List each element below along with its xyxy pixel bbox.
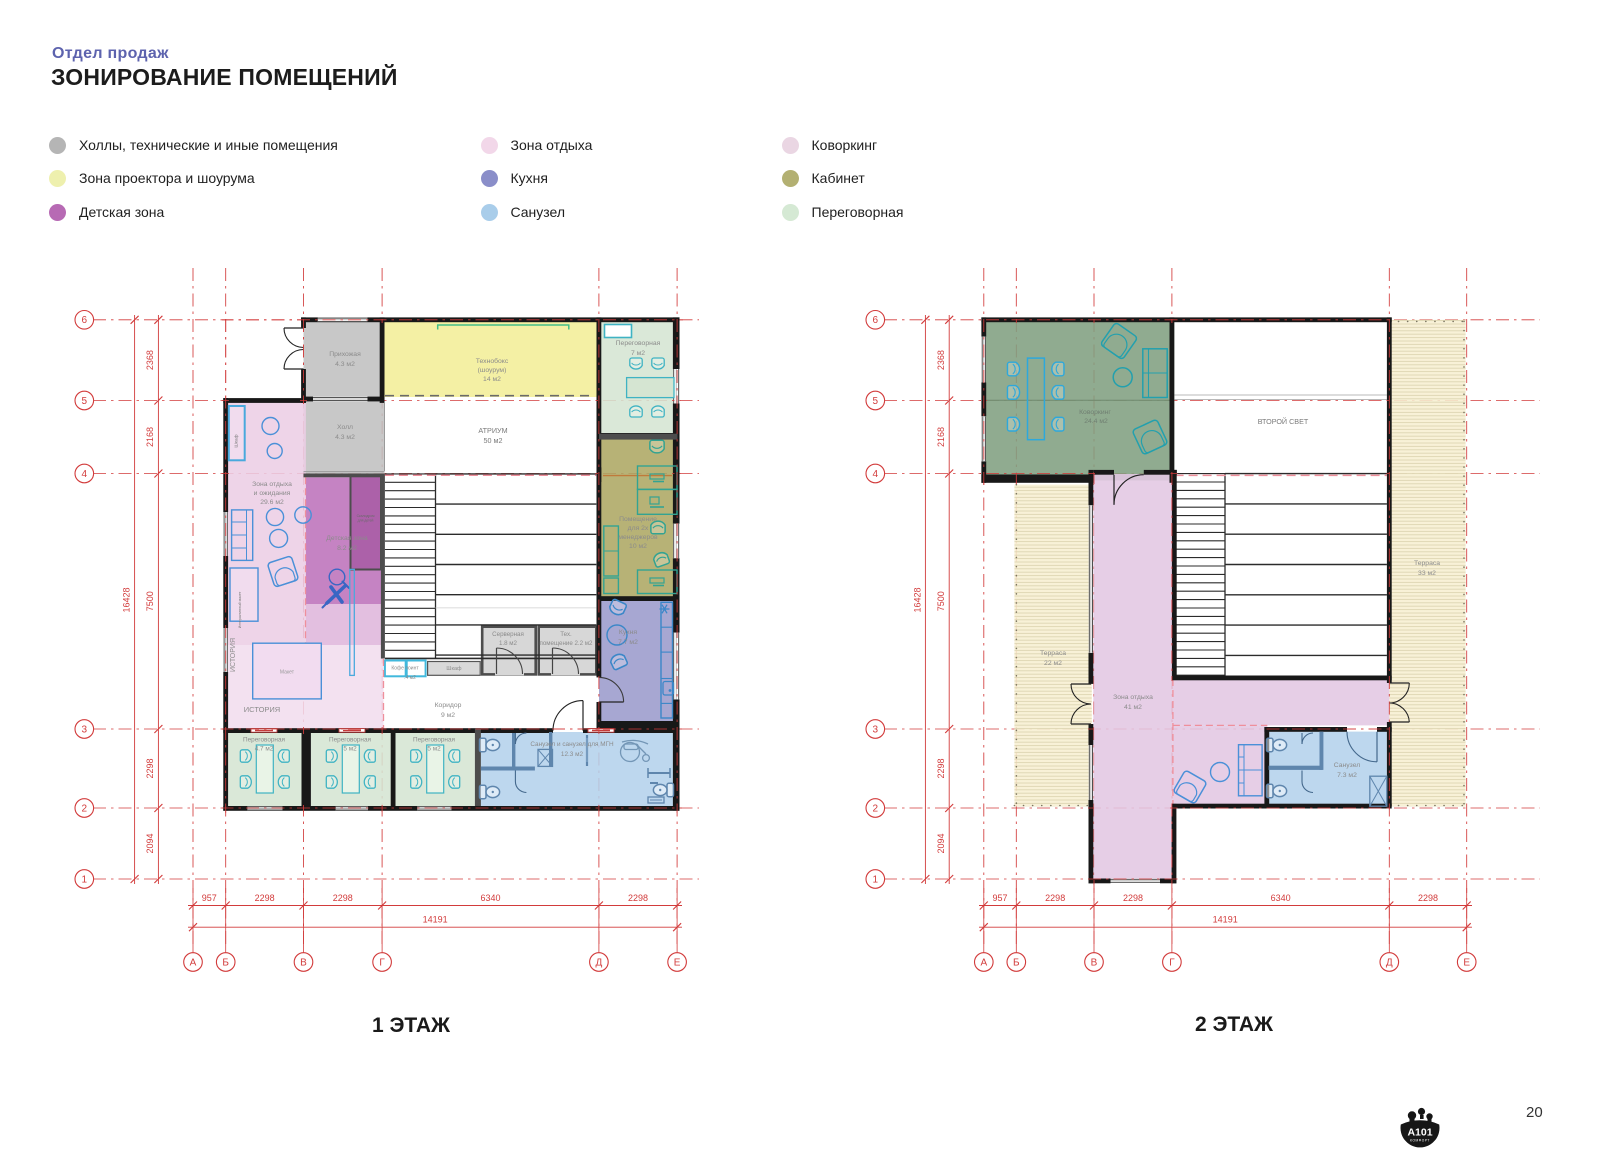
svg-text:2: 2 xyxy=(82,803,88,814)
svg-text:Детская зона: Детская зона xyxy=(326,535,368,542)
svg-text:4.7 м2: 4.7 м2 xyxy=(255,746,274,753)
svg-text:помещение 2.2 м2: помещение 2.2 м2 xyxy=(540,640,594,647)
svg-text:ВТОРОЙ СВЕТ: ВТОРОЙ СВЕТ xyxy=(1258,417,1309,426)
svg-text:5 м2: 5 м2 xyxy=(427,746,441,753)
svg-text:Зона отдыха: Зона отдыха xyxy=(1113,694,1153,701)
svg-text:8.2 м2: 8.2 м2 xyxy=(337,545,357,552)
svg-text:Терраса: Терраса xyxy=(1040,650,1066,657)
svg-text:Технобокс: Технобокс xyxy=(476,357,509,365)
svg-text:Помещение: Помещение xyxy=(619,516,657,523)
svg-text:2: 2 xyxy=(873,803,879,814)
svg-text:6340: 6340 xyxy=(480,893,500,903)
svg-text:957: 957 xyxy=(202,893,217,903)
svg-text:4.3 м2: 4.3 м2 xyxy=(335,361,355,368)
svg-text:А: А xyxy=(980,957,987,968)
svg-text:Шкаф: Шкаф xyxy=(234,434,240,447)
svg-text:Скалодром: Скалодром xyxy=(357,514,375,518)
svg-text:Холл: Холл xyxy=(337,424,353,431)
svg-text:5 м2: 5 м2 xyxy=(343,746,357,753)
svg-text:4: 4 xyxy=(82,469,88,480)
svg-text:2298: 2298 xyxy=(1045,893,1065,903)
svg-text:Переговорная: Переговорная xyxy=(329,737,372,744)
svg-text:1.8 м2: 1.8 м2 xyxy=(499,640,518,647)
svg-text:14191: 14191 xyxy=(423,915,448,925)
svg-text:Макет: Макет xyxy=(280,670,295,676)
svg-text:АТРИУМ: АТРИУМ xyxy=(478,426,507,435)
svg-text:7500: 7500 xyxy=(145,591,155,611)
svg-text:ИСТОРИЯ: ИСТОРИЯ xyxy=(244,705,280,714)
svg-text:2298: 2298 xyxy=(1123,893,1143,903)
svg-text:3: 3 xyxy=(873,724,879,735)
svg-text:12.3 м2: 12.3 м2 xyxy=(561,751,584,758)
svg-text:2298: 2298 xyxy=(333,893,353,903)
svg-text:Переговорная: Переговорная xyxy=(616,340,661,347)
svg-text:Шкаф: Шкаф xyxy=(446,666,462,672)
svg-text:2094: 2094 xyxy=(936,833,946,853)
svg-text:В: В xyxy=(1091,957,1098,968)
svg-text:9 м2: 9 м2 xyxy=(441,712,455,719)
svg-text:Интерактивный макет: Интерактивный макет xyxy=(238,591,242,628)
svg-text:22 м2: 22 м2 xyxy=(1044,660,1062,667)
svg-text:2168: 2168 xyxy=(145,427,155,447)
svg-text:2298: 2298 xyxy=(255,893,275,903)
svg-text:менеджеров: менеджеров xyxy=(618,534,658,541)
svg-text:Коридор: Коридор xyxy=(435,702,462,709)
svg-text:A101: A101 xyxy=(1407,1127,1432,1139)
svg-text:2168: 2168 xyxy=(936,427,946,447)
svg-text:2298: 2298 xyxy=(936,758,946,778)
svg-text:2298: 2298 xyxy=(145,758,155,778)
svg-text:Переговорная: Переговорная xyxy=(243,737,286,744)
svg-text:Д: Д xyxy=(1386,957,1393,968)
svg-text:10 м2: 10 м2 xyxy=(629,543,647,550)
svg-text:7500: 7500 xyxy=(936,591,946,611)
svg-text:2094: 2094 xyxy=(145,833,155,853)
svg-text:Переговорная: Переговорная xyxy=(413,737,456,744)
svg-text:Г: Г xyxy=(379,957,385,968)
svg-text:2368: 2368 xyxy=(145,350,155,370)
svg-text:2298: 2298 xyxy=(1418,893,1438,903)
svg-text:4.3 м2: 4.3 м2 xyxy=(335,434,355,441)
svg-text:7.3 м2: 7.3 м2 xyxy=(1337,772,1357,779)
svg-text:16428: 16428 xyxy=(122,587,132,612)
svg-text:24.4 м2: 24.4 м2 xyxy=(1084,418,1108,425)
svg-text:7 м2: 7 м2 xyxy=(631,350,645,357)
svg-text:В: В xyxy=(300,957,307,968)
svg-text:1: 1 xyxy=(82,874,88,885)
svg-text:Терраса: Терраса xyxy=(1414,560,1440,567)
svg-text:3: 3 xyxy=(82,724,88,735)
svg-text:и ожидания: и ожидания xyxy=(254,490,291,497)
svg-text:Тех.: Тех. xyxy=(560,631,572,638)
svg-text:41 м2: 41 м2 xyxy=(1124,704,1142,711)
svg-text:2298: 2298 xyxy=(628,893,648,903)
svg-text:Б: Б xyxy=(1013,957,1020,968)
svg-text:для 2х: для 2х xyxy=(628,525,649,532)
svg-text:1: 1 xyxy=(873,874,879,885)
svg-text:6: 6 xyxy=(873,315,879,326)
svg-text:Коворкинг: Коворкинг xyxy=(1079,409,1111,416)
svg-text:Прихожая: Прихожая xyxy=(329,351,361,358)
svg-text:4: 4 xyxy=(873,469,879,480)
svg-text:29.6 м2: 29.6 м2 xyxy=(260,499,284,506)
svg-text:КОМФОРТ: КОМФОРТ xyxy=(1410,1139,1430,1143)
svg-text:Серверная: Серверная xyxy=(492,631,524,638)
svg-text:33 м2: 33 м2 xyxy=(1418,570,1436,577)
svg-text:Г: Г xyxy=(1169,957,1175,968)
svg-text:Зона отдыха: Зона отдыха xyxy=(252,481,292,488)
svg-text:6: 6 xyxy=(82,315,88,326)
svg-text:5: 5 xyxy=(873,396,879,407)
svg-text:7.7 м2: 7.7 м2 xyxy=(618,639,638,646)
svg-text:Е: Е xyxy=(674,957,681,968)
svg-text:для детей: для детей xyxy=(358,519,374,523)
svg-text:5: 5 xyxy=(82,396,88,407)
svg-text:14191: 14191 xyxy=(1213,915,1238,925)
svg-text:Е: Е xyxy=(1463,957,1470,968)
svg-text:6340: 6340 xyxy=(1271,893,1291,903)
svg-text:Кухня: Кухня xyxy=(619,629,638,636)
svg-text:(шоурум): (шоурум) xyxy=(478,367,507,374)
svg-text:ИСТОРИЯ: ИСТОРИЯ xyxy=(230,638,237,672)
svg-text:Д: Д xyxy=(596,957,603,968)
svg-text:957: 957 xyxy=(992,893,1007,903)
svg-text:Б: Б xyxy=(222,957,229,968)
svg-text:50 м2: 50 м2 xyxy=(484,436,503,445)
svg-text:Кофе поинт: Кофе поинт xyxy=(391,666,419,672)
svg-text:.4 м2: .4 м2 xyxy=(404,675,416,681)
svg-text:Санузел: Санузел xyxy=(1334,762,1361,769)
svg-text:Санузел и санузел для МГН: Санузел и санузел для МГН xyxy=(530,741,614,748)
svg-text:А: А xyxy=(190,957,197,968)
svg-text:16428: 16428 xyxy=(912,587,922,612)
svg-text:14 м2: 14 м2 xyxy=(483,376,501,383)
svg-text:2368: 2368 xyxy=(936,350,946,370)
